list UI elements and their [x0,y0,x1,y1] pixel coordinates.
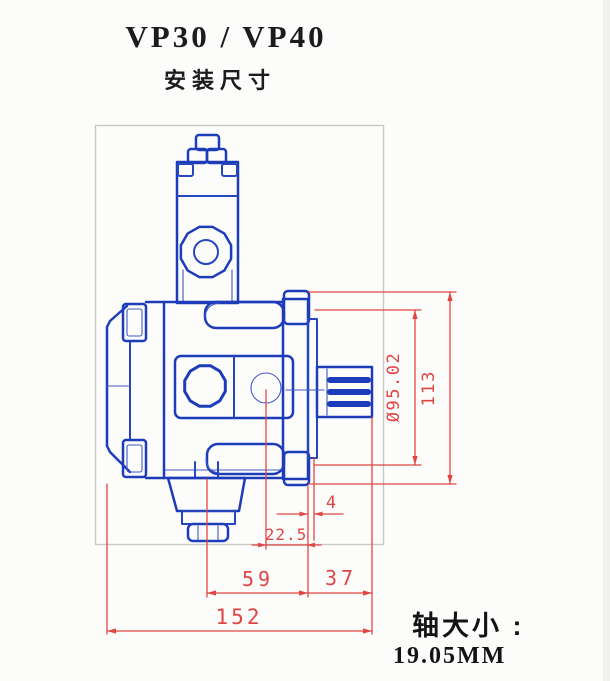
pump-installation-drawing: Ø95.02 113 4 22.5 59 [0,0,610,681]
shaft-size-label: 轴大小 : [412,604,525,643]
dim-hub-offset: 4 [277,493,343,516]
suction-port-circle [185,366,226,407]
page-edge-shade [603,0,610,681]
drawing-frame [96,126,384,545]
dim-label-hub-offset: 4 [326,493,336,513]
drawing-page: VP30 / VP40 安装尺寸 [0,0,610,681]
dim-label-37: 37 [325,566,357,590]
dim-pilot-diameter: Ø95.02 [384,310,418,465]
dim-overall-length: 152 [107,605,372,634]
dim-label-152: 152 [216,605,263,629]
pressure-valve-assembly [177,135,238,303]
left-mounting-bracket [107,304,146,477]
valve-boss-polygon [181,227,231,277]
dim-flange-to-shaft-end: 37 [308,566,372,596]
extension-lines [107,292,456,634]
dim-flange-height: 113 [419,292,453,484]
flange-hub [308,319,317,458]
mounting-flange [283,291,317,485]
pump-body [146,302,293,478]
dim-label-port-to-flange: 22.5 [265,525,308,544]
shaft-size-value: 19.05MM [393,643,506,670]
dim-port-to-flange-face: 59 [207,567,308,596]
dim-label-flange-height: 113 [419,370,439,407]
dim-label-pilot-diameter: Ø95.02 [384,352,404,422]
spline-shaft [286,367,372,417]
dim-label-59: 59 [242,567,274,591]
